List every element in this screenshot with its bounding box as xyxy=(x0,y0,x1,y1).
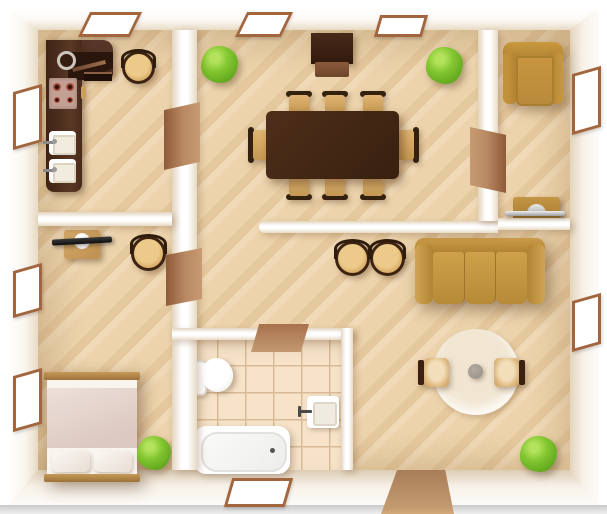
sofa-arm xyxy=(415,244,433,304)
washbasin-basin xyxy=(313,402,337,426)
dining-window-top-2 xyxy=(374,15,428,37)
burner-icon xyxy=(54,97,60,103)
floor-plan-image xyxy=(0,0,607,514)
sofa-cushion xyxy=(433,252,465,304)
burner-icon xyxy=(53,83,61,91)
sink-basin xyxy=(53,163,76,183)
armchair xyxy=(503,42,563,106)
faucet-knob-icon xyxy=(52,167,57,172)
pillow xyxy=(94,451,132,473)
rug-chair xyxy=(494,358,525,387)
study-window-right xyxy=(572,66,601,135)
corner-cabinet-shelf xyxy=(84,72,112,81)
bed-footboard xyxy=(44,372,140,380)
bedroom-stool xyxy=(131,236,166,271)
dining-chair xyxy=(286,91,312,113)
kitchen-stool xyxy=(122,51,155,84)
kitchen-door xyxy=(164,102,200,170)
dining-chair xyxy=(397,127,419,163)
bedroom-window-left-1 xyxy=(13,263,42,318)
stove-icon xyxy=(49,78,77,109)
coffee-table xyxy=(468,364,483,379)
wall-study-south xyxy=(498,218,570,230)
hall-stool xyxy=(370,241,405,276)
console-metal-bar-icon xyxy=(505,211,565,216)
pillow xyxy=(52,451,90,473)
wall-dining-study-divider xyxy=(478,30,498,221)
burner-icon xyxy=(67,97,73,103)
bed-headboard xyxy=(44,474,140,482)
wall-kitchen-bedroom-divider xyxy=(38,212,172,226)
counter-handle xyxy=(81,86,86,99)
dining-chair xyxy=(286,178,312,200)
study-door xyxy=(470,127,506,193)
sideboard-tray xyxy=(315,62,349,77)
wall-dining-south xyxy=(259,221,498,233)
faucet-knob-icon xyxy=(52,139,57,144)
dining-table xyxy=(266,111,399,179)
basin-faucet-handle-icon xyxy=(298,406,301,417)
bathtub-drain-icon xyxy=(270,448,275,453)
plant xyxy=(137,436,171,470)
sofa-cushion xyxy=(465,252,496,304)
dining-chair xyxy=(360,91,386,113)
bathroom-window-bottom xyxy=(224,478,293,507)
dining-chair xyxy=(322,91,348,113)
sofa-arm xyxy=(527,244,545,304)
sink-basin xyxy=(53,135,76,155)
living-window-right xyxy=(572,293,601,352)
bedroom-door xyxy=(166,248,202,306)
plant xyxy=(426,47,463,84)
sideboard-cabinet xyxy=(311,33,353,64)
double-bed xyxy=(44,372,140,482)
bedroom-window-left-2 xyxy=(13,368,42,432)
plant xyxy=(520,436,557,472)
bathroom-door xyxy=(251,324,309,352)
burner-icon xyxy=(66,83,74,91)
sofa xyxy=(415,238,545,308)
bed-blanket xyxy=(47,388,137,448)
wall-bathroom-east xyxy=(341,328,353,470)
round-sink-icon xyxy=(57,51,76,70)
rug-chair xyxy=(418,358,449,387)
dining-chair xyxy=(360,178,386,200)
dining-chair xyxy=(322,178,348,200)
floor-plan xyxy=(8,8,599,505)
kitchen-window-left xyxy=(13,84,42,150)
ground-strip xyxy=(0,505,607,514)
plant xyxy=(201,46,238,83)
hall-stool xyxy=(335,241,370,276)
sofa-cushion xyxy=(496,252,527,304)
